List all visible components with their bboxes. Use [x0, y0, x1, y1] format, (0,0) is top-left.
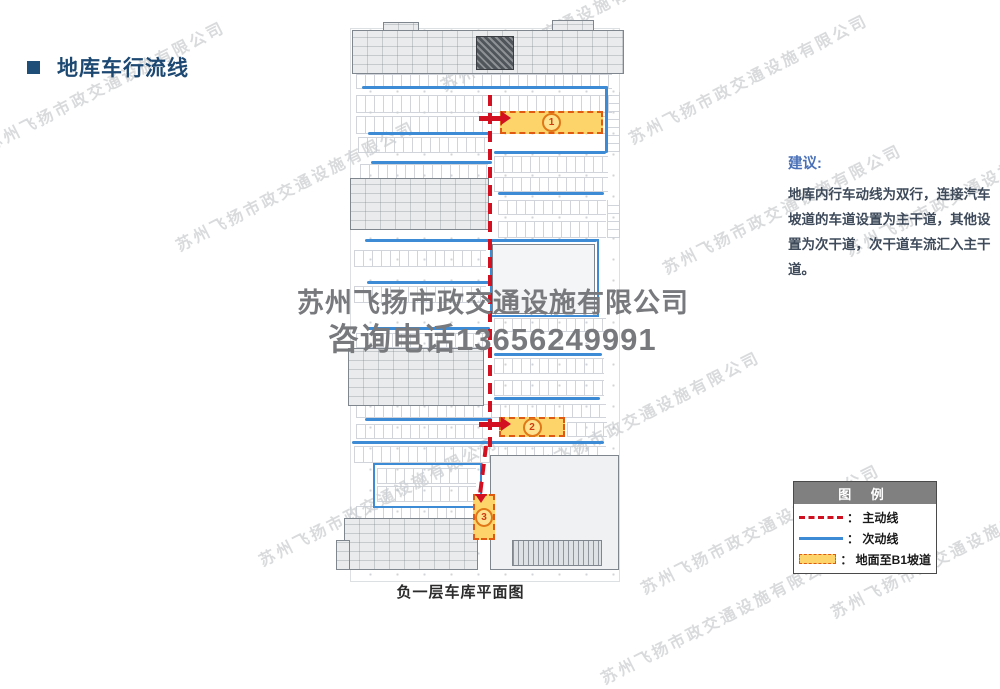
suggestion-block: 建议: 地库内行车动线为双行，连接汽车坡道的车道设置为主干道，其他设置为次干道，… — [788, 152, 994, 282]
legend-row-secondary-line: ： 次动线 — [799, 530, 931, 546]
legend-box: 图 例 ： 主动线 ： 次动线 ： 地面至B1坡道 — [793, 481, 937, 574]
secondary-flow-line — [494, 151, 606, 154]
parking-stalls — [360, 164, 488, 179]
legend-label-ramp: ： 地面至B1坡道 — [840, 551, 931, 568]
parking-stalls — [607, 92, 620, 152]
parking-stalls — [358, 137, 488, 153]
main-flow-line — [488, 95, 492, 447]
parking-stalls — [607, 200, 620, 238]
parking-stalls — [356, 404, 606, 418]
main-flow-arrowhead-ramp2 — [501, 417, 511, 431]
page-title: 地库车行流线 — [27, 52, 189, 82]
parking-stalls — [567, 422, 607, 437]
parking-stalls — [494, 177, 608, 192]
legend-title: 图 例 — [794, 482, 936, 504]
main-flow-arrowhead-ramp3 — [475, 494, 487, 503]
watermark-diagonal: 苏州飞扬市政交通设施有限公司 — [0, 14, 229, 156]
ramp-3-number: 3 — [475, 508, 493, 527]
parking-stalls — [498, 200, 606, 215]
legend-body: ： 主动线 ： 次动线 ： 地面至B1坡道 — [794, 504, 936, 573]
legend-label-secondary-line: ： 次动线 — [847, 530, 898, 547]
parking-stalls — [494, 358, 604, 374]
title-bullet-square — [27, 61, 40, 74]
secondary-flow-line — [352, 441, 604, 444]
secondary-flow-loop — [373, 463, 482, 508]
parking-stalls — [354, 250, 486, 267]
plan-caption: 负一层车库平面图 — [348, 581, 573, 602]
ramp-1-ground-to-b1: 1 — [500, 111, 603, 134]
ramp-2-number: 2 — [523, 418, 542, 437]
secondary-flow-line — [498, 192, 604, 195]
watermark-phone-number: 咨询电话13656249991 — [328, 314, 657, 359]
parking-stalls — [494, 380, 604, 396]
building-row-2 — [350, 178, 489, 230]
secondary-flow-line — [605, 86, 608, 153]
parking-stalls — [356, 424, 488, 439]
main-flow-arrow-shaft-ramp2 — [479, 422, 503, 427]
building-core-hatched — [476, 36, 514, 70]
ramp-1-number: 1 — [542, 113, 561, 132]
building-bottom-left-annex — [336, 540, 350, 570]
suggestion-body: 地库内行车动线为双行，连接汽车坡道的车道设置为主干道，其他设置为次干道，次干道车… — [788, 182, 992, 282]
legend-row-ramp: ： 地面至B1坡道 — [799, 551, 931, 567]
secondary-flow-line — [365, 418, 492, 421]
legend-row-main-line: ： 主动线 — [799, 509, 931, 525]
main-flow-arrowhead-ramp1 — [501, 111, 511, 125]
blue-line-swatch — [799, 537, 843, 540]
legend-label-main-line: ： 主动线 — [847, 509, 898, 526]
building-bottom-left — [344, 518, 478, 570]
page-title-label: 地库车行流线 — [57, 52, 189, 82]
secondary-flow-line — [371, 161, 492, 164]
watermark-diagonal: 苏州飞扬市政交通设施有限公司 — [624, 7, 872, 149]
suggestion-heading: 建议: — [788, 152, 994, 173]
red-dashed-line-swatch — [799, 516, 843, 519]
parking-stalls — [494, 156, 608, 173]
main-flow-arrow-shaft-ramp1 — [479, 116, 503, 121]
secondary-flow-line — [368, 132, 492, 135]
parking-stalls — [498, 221, 606, 238]
secondary-flow-line — [494, 397, 600, 400]
secondary-flow-line — [362, 86, 608, 89]
orange-ramp-swatch — [799, 554, 836, 564]
building-bottom-right-hatch — [512, 540, 602, 566]
